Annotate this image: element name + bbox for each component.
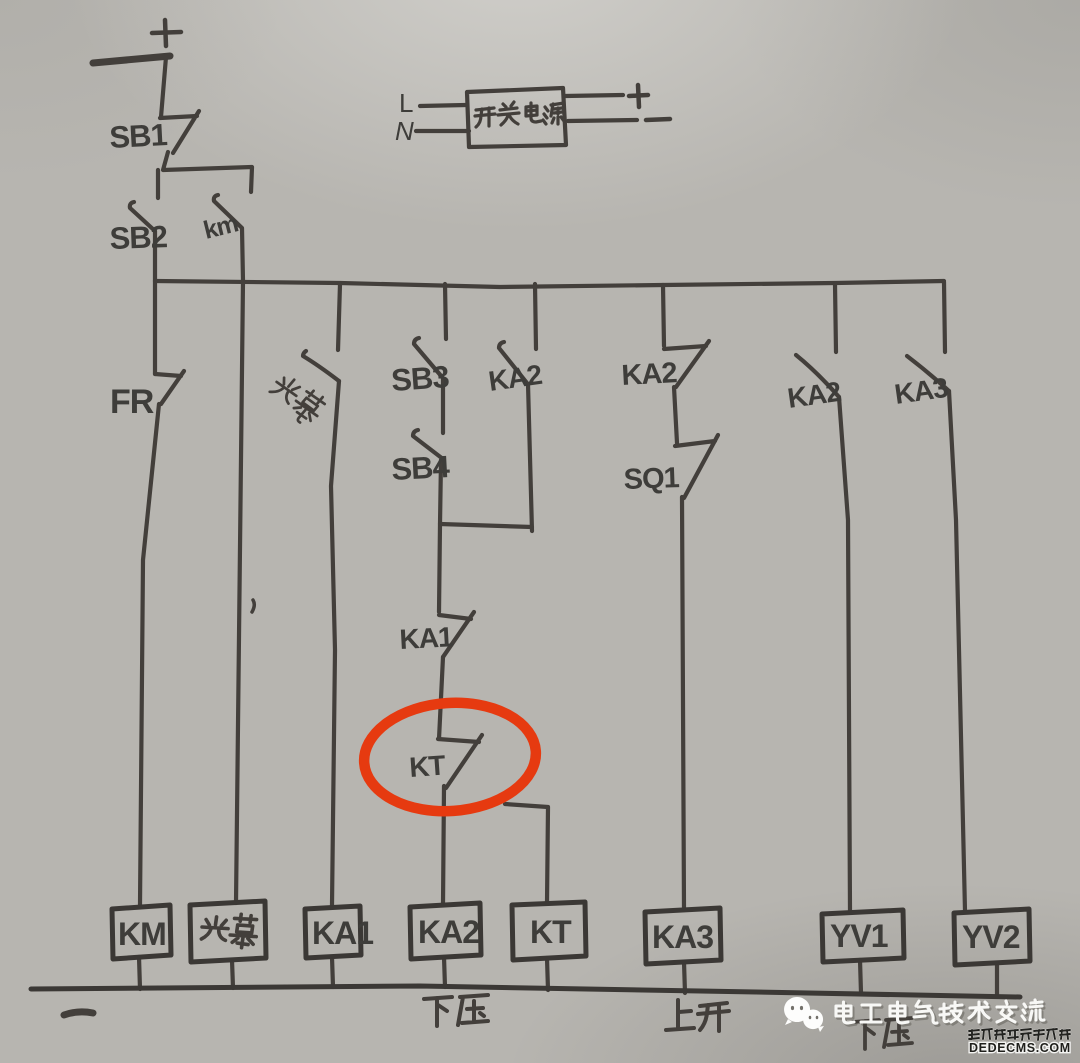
svg-text:KA2: KA2 [418,914,479,950]
svg-text:SQ1: SQ1 [623,462,680,496]
svg-text:KT: KT [408,750,446,783]
svg-text:SB3: SB3 [390,359,450,398]
svg-text:KA2: KA2 [621,357,678,392]
svg-text:KA1: KA1 [312,915,373,951]
svg-text:L: L [399,88,413,118]
svg-text:N: N [395,116,414,146]
svg-text:SB2: SB2 [109,219,167,256]
svg-text:KM: KM [118,916,166,952]
svg-text:SB1: SB1 [109,117,169,155]
svg-text:km: km [201,209,241,244]
svg-text:FR: FR [110,383,154,421]
svg-text:YV2: YV2 [962,919,1020,955]
svg-text:SB4: SB4 [391,449,452,487]
svg-text:YV1: YV1 [830,918,888,954]
svg-text:KA3: KA3 [893,372,950,410]
svg-text:KA3: KA3 [652,919,713,955]
svg-text:KA2: KA2 [786,376,843,414]
svg-text:KA1: KA1 [399,621,454,655]
svg-text:DEDECMS.COM: DEDECMS.COM [969,1041,1071,1055]
svg-text:KA2: KA2 [487,359,544,397]
svg-text:KT: KT [530,914,572,950]
